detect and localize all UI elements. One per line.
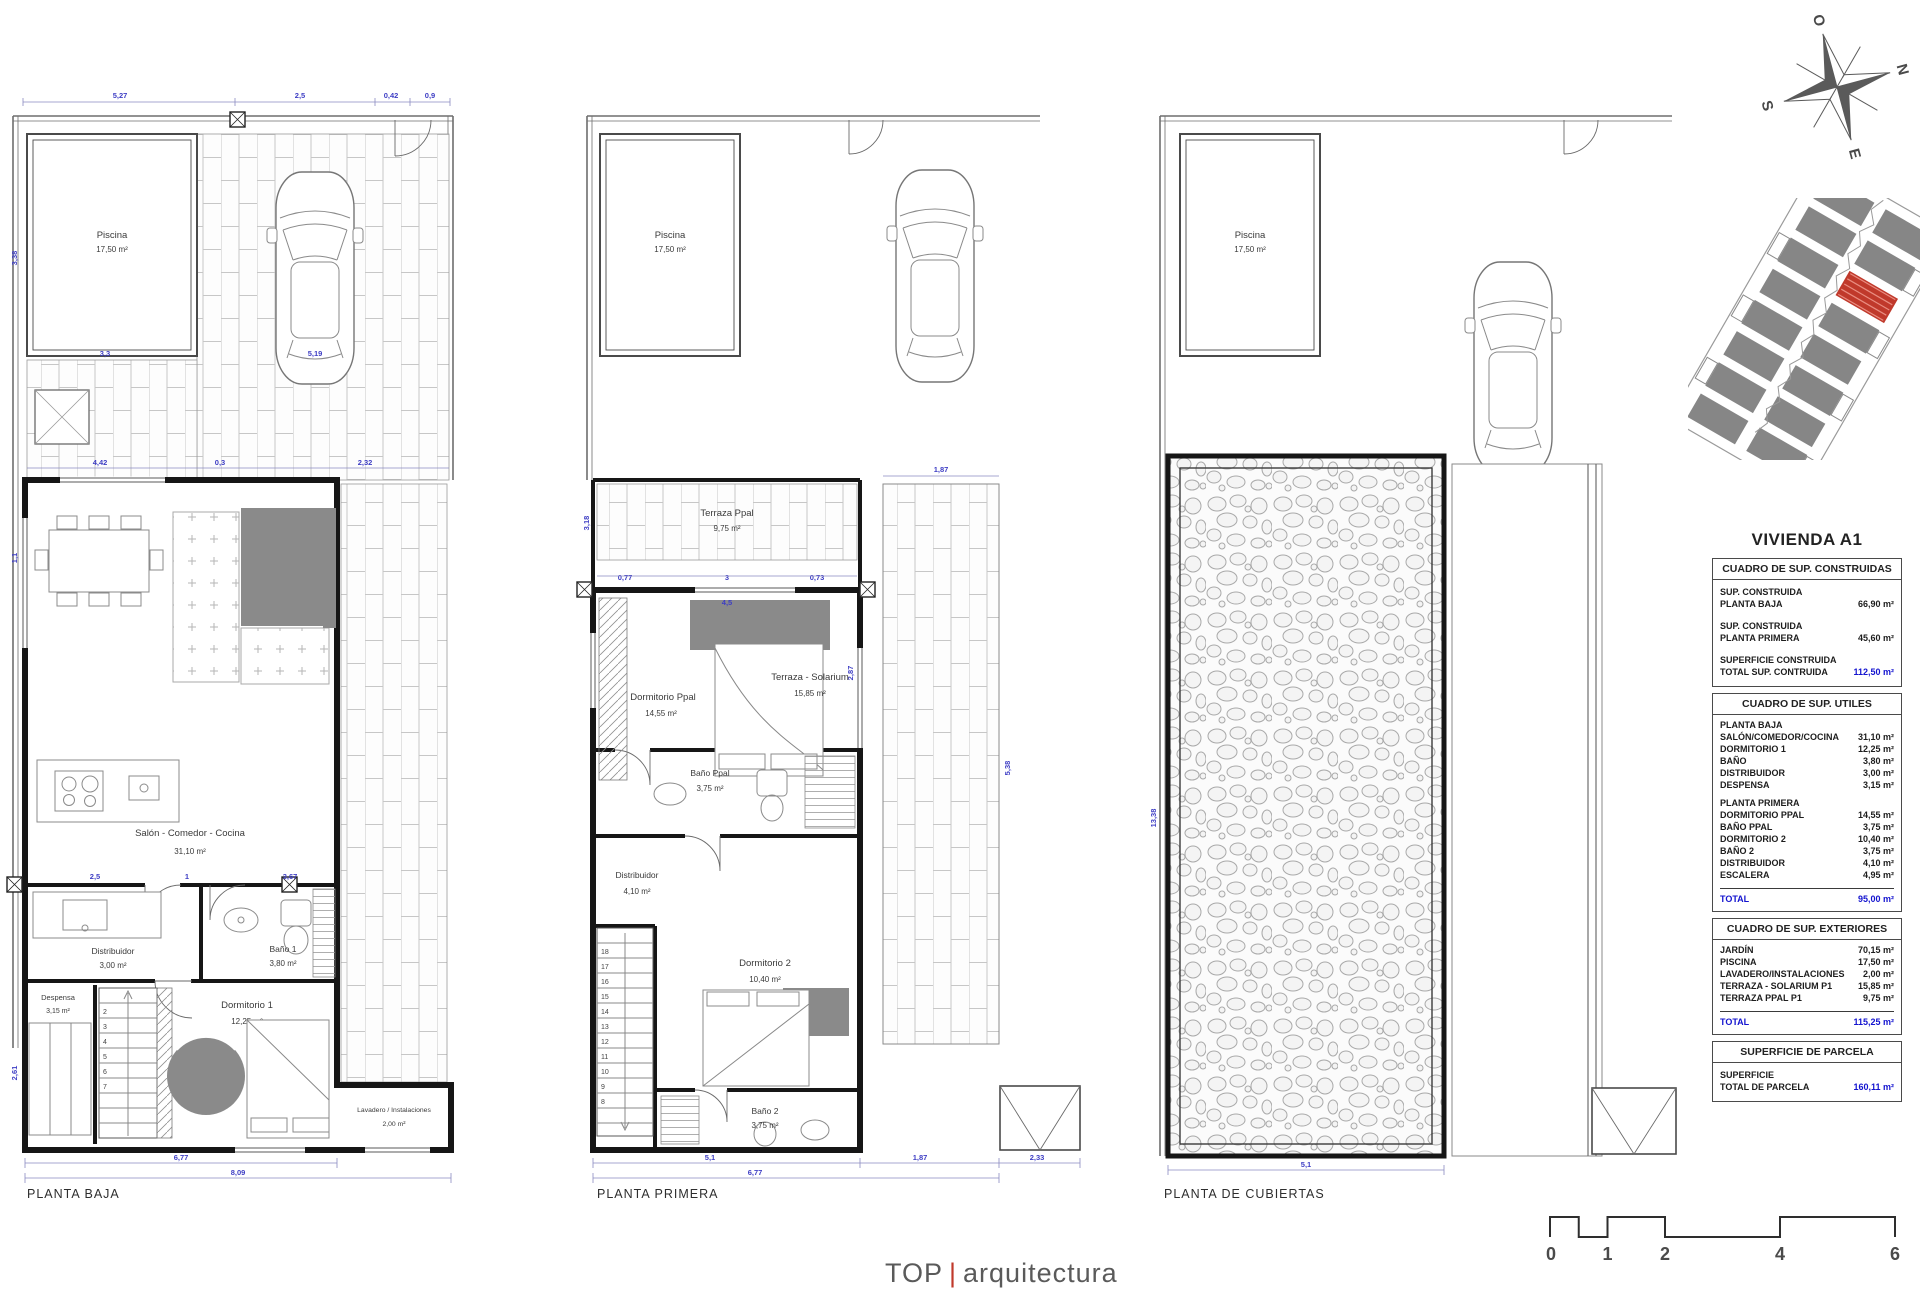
table-total-row: TOTAL115,25 m²	[1720, 1016, 1894, 1028]
stair-number: 5	[103, 1054, 107, 1061]
wall-marker	[7, 877, 22, 892]
plan1-title: PLANTA BAJA	[27, 1187, 120, 1201]
room-area-solarium: 15,85 m²	[794, 689, 826, 698]
table-row: SUP. CONSTRUIDAPLANTA PRIMERA 45,60 m²	[1720, 620, 1894, 644]
dim-label: 0,9	[425, 91, 435, 100]
stair-number: 14	[601, 1009, 609, 1016]
stair-number: 6	[103, 1069, 107, 1076]
room-area-dormitorio2: 10,40 m²	[749, 975, 781, 984]
room-label-terraza-ppal: Terraza Ppal	[700, 508, 753, 519]
sofa-dark-section	[241, 508, 329, 626]
slope-marker	[1592, 1088, 1676, 1154]
dim-label: 13,38	[1149, 809, 1158, 828]
room-label-distribuidor: Distribuidor	[616, 870, 659, 880]
headboard-wall	[690, 600, 830, 650]
table-row: DORMITORIO PPAL14,55 m²	[1720, 809, 1894, 821]
dim-label: 1,87	[913, 1153, 928, 1162]
bedroom2-furniture	[703, 988, 849, 1086]
table-sup-utiles: CUADRO DE SUP. UTILES PLANTA BAJA SALÓN/…	[1712, 693, 1902, 912]
table-header: CUADRO DE SUP. UTILES	[1713, 694, 1901, 715]
table-row: DORMITORIO 210,40 m²	[1720, 833, 1894, 845]
room-label-piscina: Piscina	[655, 230, 686, 241]
room-label-bano2: Baño 2	[752, 1106, 779, 1116]
dim-label: 1,87	[934, 465, 949, 474]
table-row: TERRAZA - SOLARIUM P115,85 m²	[1720, 980, 1894, 992]
table-row: LAVADERO/INSTALACIONES2,00 m²	[1720, 968, 1894, 980]
table-parcela: SUPERFICIE DE PARCELA SUPERFICIETOTAL DE…	[1712, 1041, 1902, 1102]
dim-label: 4,5	[722, 598, 732, 607]
car-top-view	[1465, 262, 1561, 474]
table-header: CUADRO DE SUP. CONSTRUIDAS	[1713, 559, 1901, 580]
room-label-dormitorio1: Dormitorio 1	[221, 1000, 273, 1011]
stair-number: 16	[601, 979, 609, 986]
dim-label: 3	[725, 573, 729, 582]
car-top-view	[887, 170, 983, 382]
room-area-piscina: 17,50 m²	[1234, 245, 1266, 254]
wall-marker	[860, 582, 875, 597]
scale-label-6: 6	[1890, 1244, 1900, 1264]
tv-unit	[323, 508, 336, 628]
plan1-top-dims: 5,27 2,5 0,42 0,9	[23, 91, 450, 106]
dim-label: 2,33	[1030, 1153, 1045, 1162]
plan2-title: PLANTA PRIMERA	[597, 1187, 718, 1201]
stair-number: 11	[601, 1054, 608, 1061]
stair-number: 7	[103, 1084, 107, 1091]
paving-garden-strip	[341, 484, 447, 1082]
table-row: DISTRIBUIDOR3,00 m²	[1720, 767, 1894, 779]
table-row: BAÑO 23,75 m²	[1720, 845, 1894, 857]
pool: Piscina 17,50 m²	[600, 134, 740, 356]
compass-rose: N E S O	[1752, 2, 1920, 172]
planter	[35, 390, 89, 444]
plan3-bottom-dims: 5,1	[1168, 1160, 1444, 1175]
compass-s-label: S	[1757, 99, 1776, 113]
table-row: ESCALERA4,95 m²	[1720, 869, 1894, 881]
dim-label: 2,61	[10, 1066, 19, 1081]
room-area-dormitorio-ppal: 14,55 m²	[645, 709, 677, 718]
table-sup-exteriores: CUADRO DE SUP. EXTERIORES JARDÍN70,15 m²…	[1712, 918, 1902, 1035]
table-header: SUPERFICIE DE PARCELA	[1713, 1042, 1901, 1063]
room-label-bano-ppal: Baño Ppal	[690, 768, 729, 778]
stair-number: 12	[601, 1039, 609, 1046]
dim-label: 2,32	[358, 458, 373, 467]
dim-label: 0,3	[215, 458, 225, 467]
stair-number: 15	[601, 994, 609, 1001]
table-total-row: SUPERFICIE CONSTRUIDATOTAL SUP. CONTRUID…	[1720, 654, 1894, 678]
dim-label: 5,19	[308, 349, 323, 358]
compass-o-label: O	[1809, 13, 1829, 29]
slope-marker	[1000, 1086, 1080, 1150]
room-label-dormitorio-ppal: Dormitorio Ppal	[630, 692, 695, 703]
stair-number: 10	[601, 1069, 609, 1076]
scale-label-1: 1	[1602, 1244, 1612, 1264]
room-label-salon: Salón - Comedor - Cocina	[135, 828, 246, 839]
table-row: JARDÍN70,15 m²	[1720, 944, 1894, 956]
table-sup-construidas: CUADRO DE SUP. CONSTRUIDAS SUP. CONSTRUI…	[1712, 558, 1902, 687]
pool: Piscina 17,50 m²	[27, 134, 197, 356]
dim-label: 3,18	[582, 516, 591, 531]
scale-label-0: 0	[1546, 1244, 1556, 1264]
room-area-terraza-ppal: 9,75 m²	[713, 524, 740, 533]
room-area-salon: 31,10 m²	[174, 847, 206, 856]
studio-logo: TOP|arquitectura	[885, 1258, 1118, 1289]
plan3-title: PLANTA DE CUBIERTAS	[1164, 1187, 1325, 1201]
side-passage	[1452, 464, 1602, 1156]
table-row: DORMITORIO 112,25 m²	[1720, 743, 1894, 755]
compass-n-label: N	[1893, 62, 1912, 77]
table-header: CUADRO DE SUP. EXTERIORES	[1713, 919, 1901, 940]
room-area-lavadero: 2,00 m²	[382, 1121, 406, 1128]
unit-title: VIVIENDA A1	[1712, 530, 1902, 550]
table-row: DESPENSA3,15 m²	[1720, 779, 1894, 791]
table-row: BAÑO PPAL3,75 m²	[1720, 821, 1894, 833]
dim-label: 0,77	[618, 573, 633, 582]
dim-label: 3,67	[283, 872, 298, 881]
dim-label: 4,42	[93, 458, 108, 467]
plan-planta-baja: 5,27 2,5 0,42 0,9 Piscina 17,50 m² 3,3 5…	[5, 88, 465, 1203]
pantry-shelf	[29, 1023, 91, 1135]
dim-label: 0,73	[810, 573, 825, 582]
scale-bar: 0 1 2 4 6	[1545, 1192, 1915, 1267]
bedroom1-furniture	[167, 1020, 329, 1138]
entry-door-arc	[1564, 120, 1598, 154]
dim-label: 1,1	[10, 553, 19, 563]
table-row: SUP. CONSTRUIDAPLANTA BAJA 66,90 m²	[1720, 586, 1894, 610]
room-label-despensa: Despensa	[41, 993, 76, 1002]
dim-label: 6,77	[174, 1153, 189, 1162]
stair-number: 18	[601, 949, 609, 956]
room-label-piscina: Piscina	[1235, 230, 1266, 241]
scale-label-2: 2	[1660, 1244, 1670, 1264]
room-area-bano1: 3,80 m²	[269, 959, 296, 968]
dim-label: 2,5	[295, 91, 305, 100]
dim-label: 5,27	[113, 91, 128, 100]
staircase: 2 3 4 5 6 7	[99, 988, 172, 1138]
table-row: BAÑO3,80 m²	[1720, 755, 1894, 767]
entry-door-arc	[849, 120, 883, 154]
room-label-distribuidor: Distribuidor	[92, 946, 135, 956]
stair-number: 2	[103, 1009, 107, 1016]
plan1-bottom-dims: 6,77 8,09	[25, 1153, 451, 1183]
dim-label: 3,3	[100, 349, 110, 358]
wardrobe	[599, 598, 627, 780]
room-area-distribuidor: 4,10 m²	[623, 887, 650, 896]
room-area-piscina: 17,50 m²	[654, 245, 686, 254]
room-area-bano2: 3,75 m²	[751, 1121, 778, 1130]
section-title: PLANTA BAJA	[1720, 719, 1894, 731]
dim-label: 8,09	[231, 1168, 246, 1177]
table-total-row: SUPERFICIETOTAL DE PARCELA 160,11 m²	[1720, 1069, 1894, 1093]
room-label-dormitorio2: Dormitorio 2	[739, 958, 791, 969]
compass-e-label: E	[1845, 147, 1864, 161]
stair-number: 3	[103, 1024, 107, 1031]
bathroom2-fixtures	[661, 1096, 829, 1146]
pool: Piscina 17,50 m²	[1180, 134, 1320, 356]
fence-marker	[230, 112, 245, 127]
section-title: PLANTA PRIMERA	[1720, 797, 1894, 809]
dim-label: 5,1	[1301, 1160, 1311, 1169]
kitchen-island	[37, 760, 179, 822]
stair-number: 8	[601, 1099, 605, 1106]
table-row: DISTRIBUIDOR4,10 m²	[1720, 857, 1894, 869]
plan-planta-primera: Piscina 17,50 m² Terraza Ppal 9,75 m² 0,…	[465, 88, 1125, 1203]
logo-brand: TOP	[885, 1258, 943, 1288]
room-label-piscina: Piscina	[97, 230, 128, 241]
room-label-solarium: Terraza - Solarium	[771, 672, 849, 683]
logo-separator: |	[943, 1258, 963, 1288]
stair-number: 13	[601, 1024, 609, 1031]
terraza-solarium	[883, 484, 999, 1044]
sofa	[173, 508, 336, 684]
staircase: 18 17 16 15 14 13 12 11 10 9 8	[597, 928, 653, 1136]
room-area-bano-ppal: 3,75 m²	[696, 784, 723, 793]
gravel-roof	[1168, 456, 1444, 1156]
stair-number: 17	[601, 964, 609, 971]
logo-name: arquitectura	[963, 1258, 1118, 1288]
title-block: VIVIENDA A1 CUADRO DE SUP. CONSTRUIDAS S…	[1712, 530, 1902, 1108]
floorplan-sheet: { "p1": { "title": "PLANTA BAJA", "pool_…	[0, 0, 1920, 1280]
console	[33, 892, 161, 938]
room-area-distribuidor: 3,00 m²	[99, 961, 126, 970]
wall-marker	[577, 582, 592, 597]
dim-label: 1	[185, 872, 189, 881]
stair-number: 4	[103, 1039, 107, 1046]
terraza-ppal: Terraza Ppal 9,75 m² 0,77 3 0,73	[593, 480, 860, 590]
dim-label: 5,38	[1003, 761, 1012, 776]
dim-label: 3,38	[10, 251, 19, 266]
room-area-piscina: 17,50 m²	[96, 245, 128, 254]
dim-label: 5,1	[705, 1153, 715, 1162]
room-label-lavadero: Lavadero / Instalaciones	[357, 1107, 431, 1114]
table-row: PISCINA17,50 m²	[1720, 956, 1894, 968]
dim-label: 6,77	[748, 1168, 763, 1177]
compass-star	[1770, 20, 1905, 155]
dim-label: 2,5	[90, 872, 100, 881]
table-row: TERRAZA PPAL P19,75 m²	[1720, 992, 1894, 1004]
table-row: SALÓN/COMEDOR/COCINA31,10 m²	[1720, 731, 1894, 743]
stair-number: 9	[601, 1084, 605, 1091]
plan2-bottom-dims: 5,1 1,87 2,33 6,77	[593, 1153, 1080, 1183]
scale-label-4: 4	[1775, 1244, 1785, 1264]
table-total-row: TOTAL95,00 m²	[1720, 893, 1894, 905]
site-plan-minimap	[1688, 198, 1920, 460]
dim-label: 0,42	[384, 91, 399, 100]
room-area-despensa: 3,15 m²	[46, 1008, 70, 1015]
dining-table	[35, 516, 163, 606]
room-label-bano1: Baño 1	[270, 944, 297, 954]
